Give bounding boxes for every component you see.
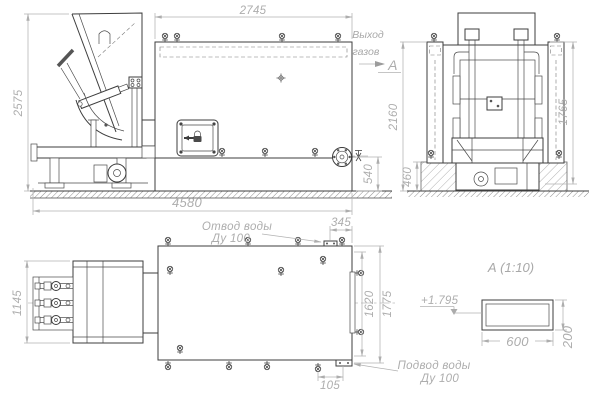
svg-text:1145: 1145: [12, 290, 24, 316]
svg-text:2575: 2575: [13, 89, 25, 117]
water-outlet-label: Отвод воды Ду 100: [202, 221, 321, 245]
svg-text:Ду 100: Ду 100: [419, 373, 459, 385]
svg-text:Выход: Выход: [352, 29, 384, 41]
drawing-sheet: 2745 2575 4580 540 Выход газов А: [0, 0, 600, 400]
top-valve-icons: [162, 33, 341, 42]
svg-text:Ду 100: Ду 100: [210, 233, 250, 245]
dim-feeder-height: 2575: [13, 14, 69, 191]
svg-text:2745: 2745: [239, 5, 267, 17]
svg-text:1775: 1775: [382, 290, 394, 317]
inspection-door: [177, 120, 218, 156]
elevation-arrow-icon: [451, 309, 458, 315]
svg-text:1620: 1620: [364, 290, 376, 317]
feeder-beam: [34, 147, 146, 158]
svg-text:газов: газов: [353, 46, 380, 58]
right-flange-plate: [350, 272, 355, 333]
water-inlet-stub: [336, 360, 352, 366]
ground-hatch-front: [30, 191, 392, 198]
section-arrow-a: А: [359, 57, 401, 73]
svg-text:2160: 2160: [388, 103, 400, 131]
svg-text:+1.795: +1.795: [421, 295, 459, 307]
feeder-plan: [33, 261, 158, 343]
svg-text:105: 105: [320, 380, 340, 392]
svg-text:4580: 4580: [172, 195, 203, 210]
section-arrow-icon: [375, 61, 385, 67]
hydraulic-cylinder: [79, 83, 129, 109]
gas-duct-inner: [486, 304, 549, 326]
foundation-left: [421, 162, 456, 191]
detail-title: А (1:10): [487, 260, 534, 275]
elevation-mark: +1.795: [420, 295, 482, 315]
svg-text:200: 200: [560, 325, 575, 349]
ground-hatch-side: [407, 191, 589, 197]
svg-text:600: 600: [506, 334, 529, 349]
svg-text:Подвод воды: Подвод воды: [397, 360, 470, 372]
plan-view: 1145 345 1620 1775 105 Отвод воды Ду 100: [12, 217, 471, 392]
technical-drawing: 2745 2575 4580 540 Выход газов А: [0, 0, 600, 400]
detail-a-view: А (1:10) 600 200 +1.795: [420, 260, 575, 349]
dim-outlet-height: 540: [353, 157, 382, 191]
dim-plan-width-inner: 1620: [354, 252, 376, 356]
dim-foundation-height: 460: [402, 162, 421, 191]
water-outlet-stub: [324, 241, 337, 246]
svg-text:А: А: [387, 57, 398, 73]
dim-detail-width: 600: [482, 332, 553, 349]
feeder-front: [31, 13, 155, 188]
svg-text:1765: 1765: [558, 98, 570, 125]
dim-detail-height: 200: [555, 300, 575, 349]
svg-text:345: 345: [331, 217, 351, 229]
boiler-body: [155, 42, 352, 191]
grate-frame: [452, 138, 543, 163]
svg-text:460: 460: [402, 167, 414, 187]
tipping-lever: [58, 50, 73, 66]
dim-front-body-width: 2745: [155, 5, 352, 39]
gas-outlet-label: Выход газов: [352, 29, 384, 58]
dim-inlet-offset: 105: [318, 366, 343, 392]
hook-symbol: [99, 31, 110, 44]
front-view: 2745 2575 4580 540 Выход газов А: [13, 5, 401, 215]
water-inlet-label: Подвод воды Ду 100: [354, 360, 471, 385]
svg-text:Отвод воды: Отвод воды: [202, 221, 272, 233]
svg-text:540: 540: [363, 164, 375, 184]
side-view: 2160 460 1765: [388, 13, 589, 197]
